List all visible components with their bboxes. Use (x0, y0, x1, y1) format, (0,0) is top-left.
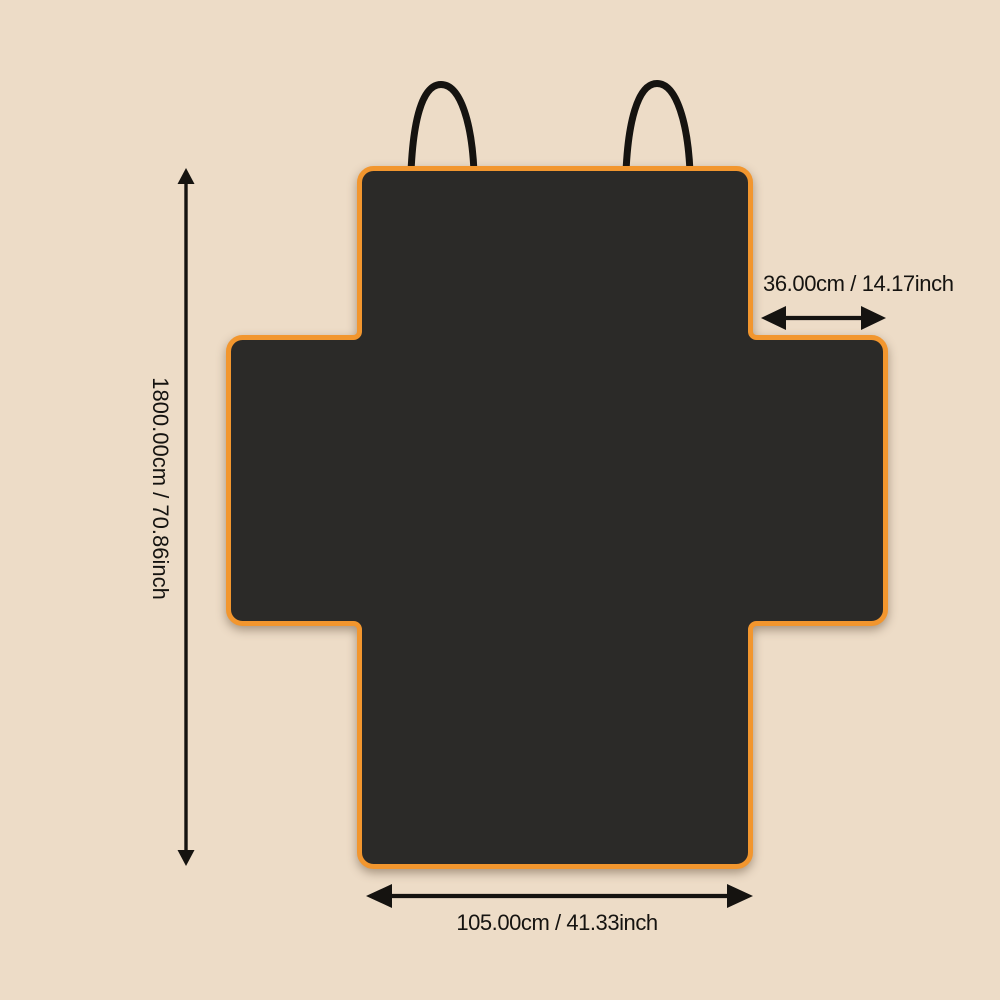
svg-text:1800.00cm / 70.86inch: 1800.00cm / 70.86inch (148, 377, 173, 600)
svg-text:36.00cm / 14.17inch: 36.00cm / 14.17inch (763, 271, 954, 296)
svg-text:105.00cm / 41.33inch: 105.00cm / 41.33inch (456, 910, 657, 935)
